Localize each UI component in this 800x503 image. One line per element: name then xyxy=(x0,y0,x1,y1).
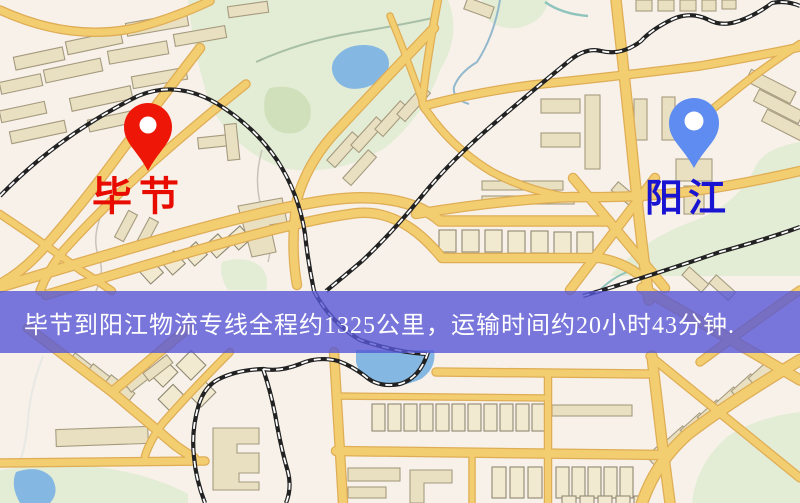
map-container: 毕节 阳江 毕节到阳江物流专线全程约1325公里，运输时间约20小时43分钟. xyxy=(0,0,800,503)
origin-city-label: 毕节 xyxy=(92,177,186,217)
destination-city-label: 阳江 xyxy=(645,180,731,218)
map-canvas[interactable] xyxy=(0,0,800,503)
route-info-banner: 毕节到阳江物流专线全程约1325公里，运输时间约20小时43分钟. xyxy=(0,291,800,353)
route-info-text: 毕节到阳江物流专线全程约1325公里，运输时间约20小时43分钟. xyxy=(0,305,735,340)
